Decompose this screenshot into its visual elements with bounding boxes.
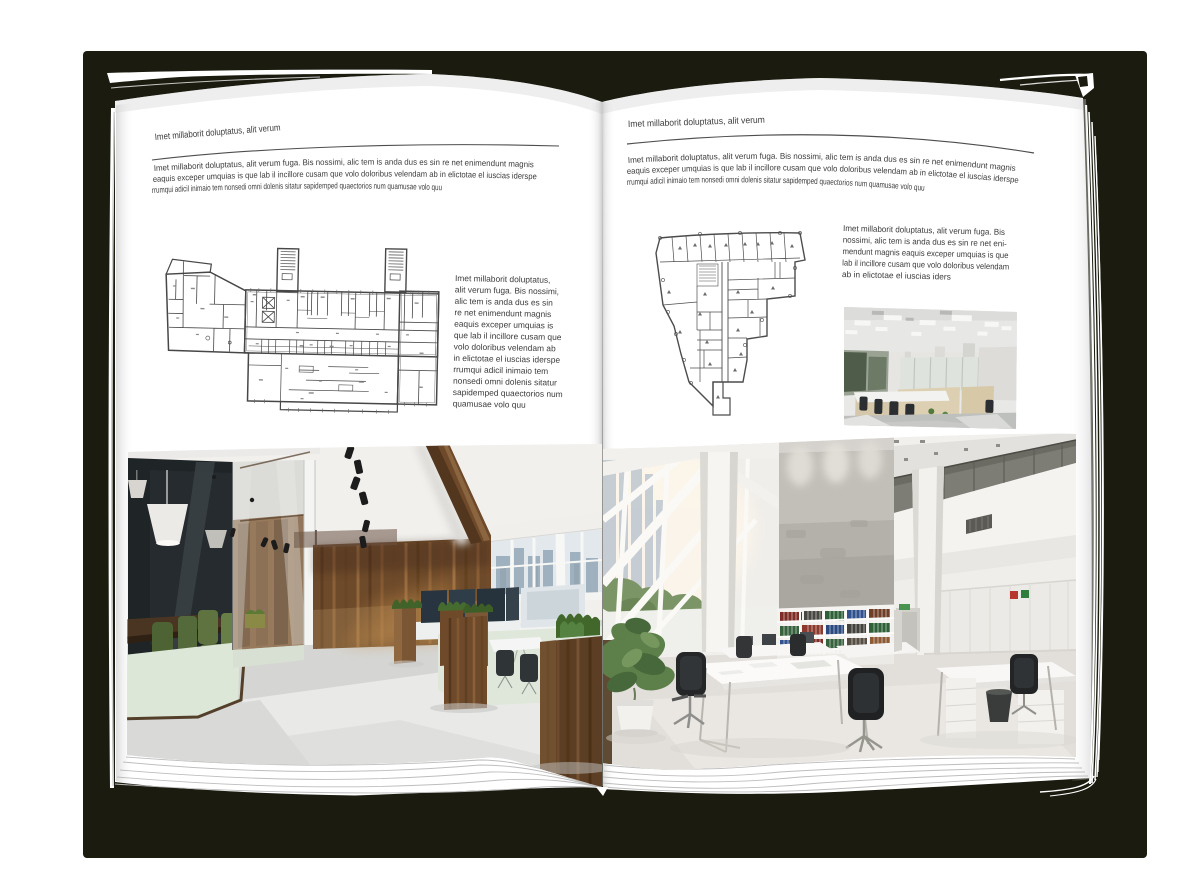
svg-text:alic tem is anda dus es sin: alic tem is anda dus es sin bbox=[455, 296, 554, 308]
svg-text:sapidemped quaectorios num: sapidemped quaectorios num bbox=[453, 387, 563, 399]
svg-text:que lab il incillore cusam que: que lab il incillore cusam que bbox=[454, 330, 562, 342]
svg-text:nonsedi omni dolenis sitatur: nonsedi omni dolenis sitatur bbox=[453, 376, 557, 388]
svg-text:alit verum fuga. Bis nossimi,: alit verum fuga. Bis nossimi, bbox=[455, 284, 559, 296]
svg-text:rrumqui adicil inimaio tem: rrumqui adicil inimaio tem bbox=[453, 364, 548, 376]
svg-text:eaquis exceper umquias is: eaquis exceper umquias is bbox=[454, 319, 553, 331]
svg-text:Imet millaborit doluptatus,: Imet millaborit doluptatus, bbox=[455, 273, 551, 285]
svg-text:in elictotae el iuscias idersp: in elictotae el iuscias iderspe bbox=[453, 353, 560, 365]
svg-text:volo doloribus velendam ab: volo doloribus velendam ab bbox=[454, 341, 556, 353]
svg-text:quamusae volo quu: quamusae volo quu bbox=[453, 398, 527, 409]
svg-text:re net enimendunt magnis: re net enimendunt magnis bbox=[454, 307, 551, 319]
